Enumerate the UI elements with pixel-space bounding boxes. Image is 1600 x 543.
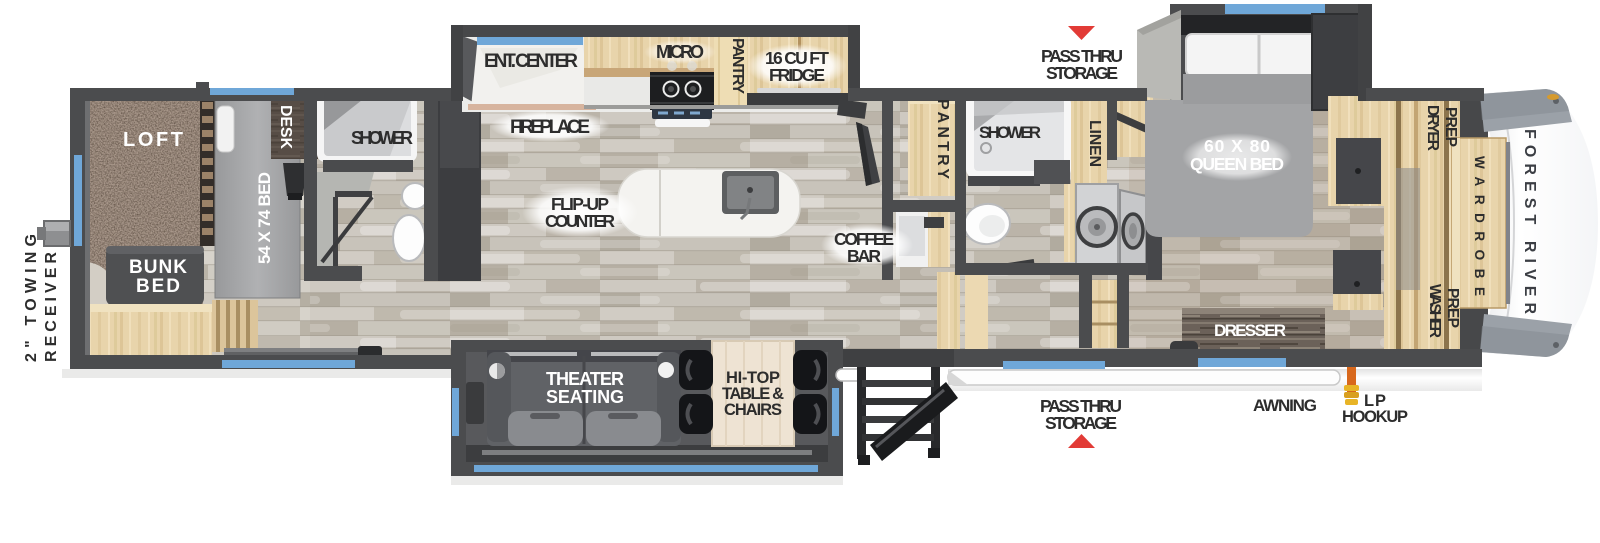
svg-text:LOFT: LOFT xyxy=(123,129,183,151)
svg-text:THEATER: THEATER xyxy=(546,369,624,389)
svg-text:BUNK: BUNK xyxy=(129,257,187,278)
svg-text:FOREST RIVER: FOREST RIVER xyxy=(1521,129,1538,315)
svg-text:RECEIVER: RECEIVER xyxy=(43,252,60,362)
svg-text:DESK: DESK xyxy=(277,105,294,149)
svg-text:AWNING: AWNING xyxy=(1253,396,1317,415)
svg-text:54 X 74 BED: 54 X 74 BED xyxy=(255,172,274,264)
svg-text:HOOKUP: HOOKUP xyxy=(1342,408,1408,426)
svg-text:ENT. CENTER: ENT. CENTER xyxy=(484,51,578,72)
svg-text:PREP: PREP xyxy=(1444,288,1461,328)
svg-text:DRYER: DRYER xyxy=(1424,105,1441,151)
svg-text:60 X 80: 60 X 80 xyxy=(1204,136,1270,156)
svg-text:QUEEN BED: QUEEN BED xyxy=(1190,154,1284,174)
svg-text:STORAGE: STORAGE xyxy=(1045,413,1117,433)
svg-text:WASHER: WASHER xyxy=(1426,284,1443,338)
svg-text:LINEN: LINEN xyxy=(1086,120,1103,167)
svg-text:PANTRY: PANTRY xyxy=(729,38,746,94)
svg-text:2" TOWING: 2" TOWING xyxy=(23,234,40,362)
svg-text:DRESSER: DRESSER xyxy=(1214,321,1286,340)
svg-text:MICRO: MICRO xyxy=(656,42,704,62)
svg-text:BAR: BAR xyxy=(847,246,881,266)
svg-text:BED: BED xyxy=(136,276,180,297)
svg-text:FIREPLACE: FIREPLACE xyxy=(510,117,590,138)
svg-text:SEATING: SEATING xyxy=(546,387,624,407)
svg-text:PREP: PREP xyxy=(1442,107,1459,147)
svg-text:SHOWER: SHOWER xyxy=(351,128,413,148)
svg-text:SHOWER: SHOWER xyxy=(979,123,1041,142)
svg-text:FRIDGE: FRIDGE xyxy=(769,65,825,85)
svg-text:CHAIRS: CHAIRS xyxy=(724,401,782,419)
svg-text:COUNTER: COUNTER xyxy=(545,211,615,231)
svg-text:STORAGE: STORAGE xyxy=(1046,63,1118,83)
